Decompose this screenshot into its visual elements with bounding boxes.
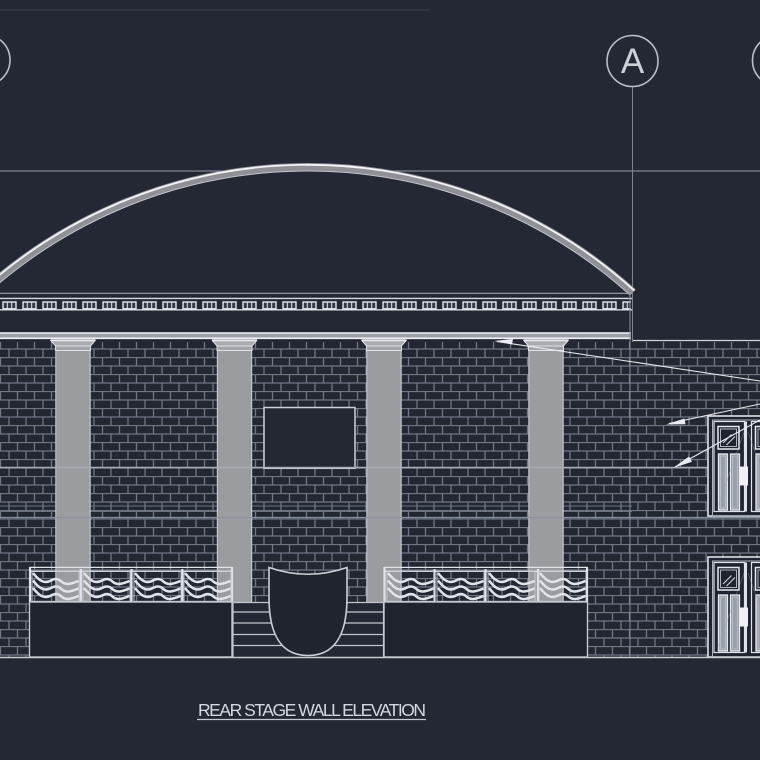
svg-text:REAR STAGE WALL ELEVATION: REAR STAGE WALL ELEVATION (198, 700, 426, 720)
svg-text:A: A (621, 42, 645, 81)
